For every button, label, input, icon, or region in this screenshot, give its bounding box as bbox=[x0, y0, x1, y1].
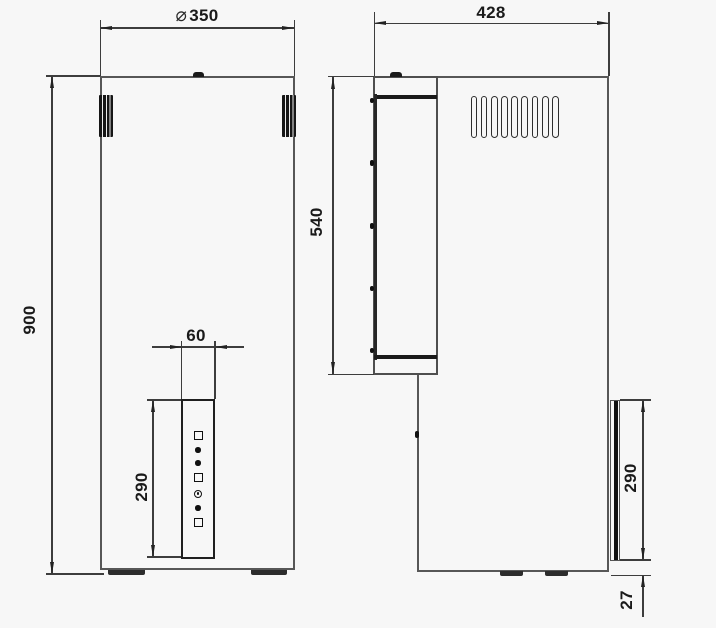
panel-bottom-cap-bar bbox=[374, 355, 437, 360]
foot-icon bbox=[251, 570, 287, 575]
vent-slot-icon bbox=[542, 96, 549, 138]
extension-line bbox=[46, 75, 100, 76]
dimension-line bbox=[642, 400, 643, 560]
arrowhead-icon bbox=[331, 362, 335, 374]
arrowhead-icon bbox=[641, 400, 645, 412]
arrowhead-icon bbox=[151, 400, 155, 412]
arrowhead-icon bbox=[100, 26, 112, 30]
panel-top-cap-bar bbox=[374, 95, 437, 100]
arrowhead-icon bbox=[50, 76, 54, 88]
vent-slot-icon bbox=[511, 96, 518, 138]
screw-icon bbox=[370, 98, 374, 104]
dimension-line bbox=[51, 76, 52, 574]
extension-line bbox=[328, 76, 374, 77]
side-front-panel-outline bbox=[373, 76, 438, 375]
dim-value: 900 bbox=[20, 305, 40, 334]
extension-line bbox=[214, 341, 215, 399]
dim-label-panel-height-front: 290 bbox=[132, 457, 152, 517]
vent-slot-icon bbox=[552, 96, 559, 138]
screw-icon bbox=[370, 286, 374, 292]
dim-label-front-width: ⌀ 350 bbox=[157, 4, 237, 28]
panel-front-edge bbox=[374, 94, 378, 360]
side-body-left-lower-line bbox=[417, 374, 419, 572]
square-button-icon bbox=[194, 473, 203, 482]
dim-value: 60 bbox=[186, 326, 206, 346]
dim-value: 290 bbox=[621, 463, 641, 492]
side-body-right-line bbox=[607, 76, 609, 572]
dim-label-side-front-panel-height: 540 bbox=[307, 192, 327, 252]
vent-slot-icon bbox=[501, 96, 508, 138]
square-button-icon bbox=[194, 518, 203, 527]
screw-icon bbox=[370, 348, 374, 354]
arrowhead-icon bbox=[331, 77, 335, 89]
diameter-symbol: ⌀ bbox=[175, 4, 187, 27]
dim-value: 350 bbox=[189, 6, 218, 26]
top-cap-icon bbox=[390, 72, 402, 77]
indicator-button-icon bbox=[194, 490, 202, 498]
extension-line bbox=[620, 559, 651, 560]
vent-slot-icon bbox=[521, 96, 528, 138]
arrowhead-icon bbox=[282, 26, 294, 30]
screw-icon bbox=[370, 223, 374, 229]
screw-icon bbox=[370, 160, 374, 166]
dim-value: 290 bbox=[132, 472, 152, 501]
dot-button-icon bbox=[195, 447, 201, 453]
arrowhead-icon bbox=[597, 21, 609, 25]
vent-grille bbox=[471, 96, 559, 138]
foot-icon bbox=[500, 571, 523, 575]
arrowhead-icon bbox=[151, 545, 155, 557]
top-cap-icon bbox=[193, 72, 204, 77]
vent-slot-icon bbox=[481, 96, 488, 138]
dim-label-side-bottom-offset: 27 bbox=[617, 570, 637, 628]
dim-value: 540 bbox=[307, 207, 327, 236]
vent-slot-icon bbox=[471, 96, 478, 138]
extension-line bbox=[181, 341, 182, 399]
vent-slot-icon bbox=[532, 96, 539, 138]
foot-icon bbox=[545, 571, 568, 575]
arrowhead-icon bbox=[50, 562, 54, 574]
extension-line bbox=[46, 573, 104, 574]
arrowhead-icon bbox=[641, 548, 645, 560]
dim-label-side-depth: 428 bbox=[461, 2, 521, 24]
extension-line bbox=[328, 374, 374, 375]
dimension-line bbox=[152, 400, 153, 557]
dot-button-icon bbox=[195, 505, 201, 511]
dot-button-icon bbox=[195, 460, 201, 466]
dim-value: 27 bbox=[617, 590, 637, 610]
screw-icon bbox=[415, 431, 419, 438]
square-button-icon bbox=[194, 431, 203, 440]
arrowhead-icon bbox=[641, 575, 645, 587]
side-control-panel-face bbox=[614, 401, 618, 561]
arrowhead-icon bbox=[374, 21, 386, 25]
left-vent-grille-icon bbox=[99, 95, 113, 137]
technical-drawing-canvas: ⌀ 350 900 60 290 bbox=[0, 0, 716, 628]
dim-label-side-panel-height: 290 bbox=[621, 448, 641, 508]
foot-icon bbox=[108, 570, 145, 575]
dimension-line bbox=[332, 77, 333, 374]
panel-symbol-column bbox=[190, 431, 206, 527]
right-vent-grille-icon bbox=[282, 95, 296, 137]
extension-line bbox=[620, 399, 651, 400]
vent-slot-icon bbox=[491, 96, 498, 138]
dim-label-panel-width: 60 bbox=[166, 325, 226, 347]
dim-value: 428 bbox=[476, 3, 505, 23]
dim-label-front-height: 900 bbox=[20, 290, 40, 350]
